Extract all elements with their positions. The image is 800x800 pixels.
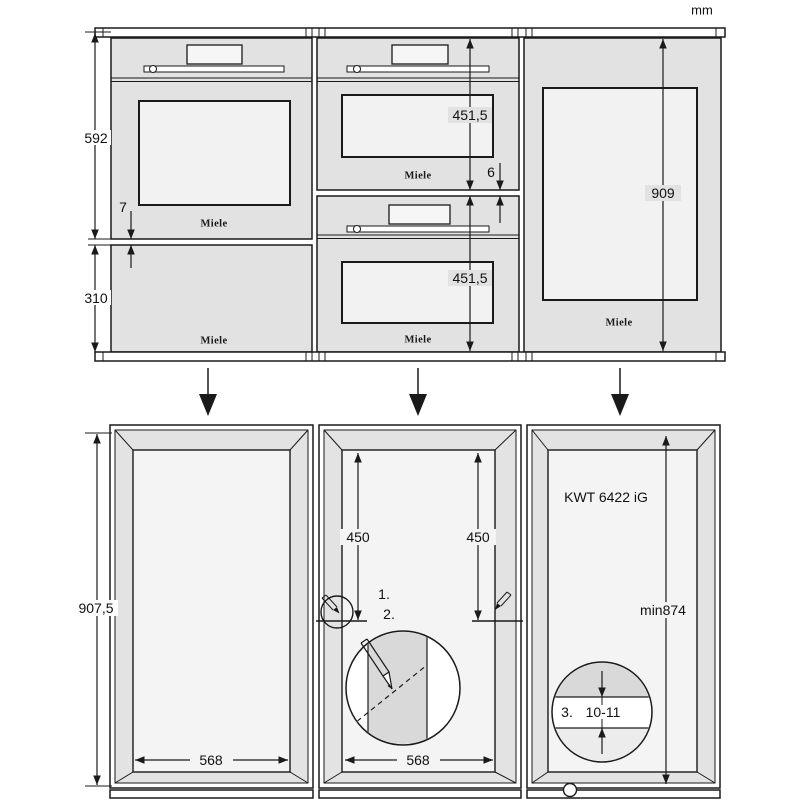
- compact-appliances: Miele Miele: [317, 38, 519, 352]
- oven-brand-logo: Miele: [200, 219, 227, 230]
- trim-strip-bar: [95, 352, 725, 361]
- left-niche: 907,5 568: [74, 425, 313, 798]
- niche-base-strip: [319, 790, 521, 798]
- oven-appliance: Miele Miele: [88, 38, 312, 352]
- lower-trim-strip: [95, 352, 725, 361]
- diagram-canvas: mm Miele: [0, 0, 800, 800]
- lower-compact-brand-logo: Miele: [404, 335, 431, 346]
- oven-door-window: [139, 101, 290, 205]
- flow-arrow-right: [611, 368, 629, 416]
- dim-label: min874: [640, 602, 686, 618]
- top-trim-strip: [95, 28, 725, 37]
- dim-label: 7: [119, 199, 127, 215]
- dim-label: 6: [487, 164, 495, 180]
- drawer-brand-logo: Miele: [200, 336, 227, 347]
- dim-label: 568: [406, 752, 430, 768]
- gap-dim-label: 10-11: [586, 704, 621, 720]
- oven-control-bar: [144, 66, 284, 72]
- flow-arrow-left: [199, 368, 217, 416]
- side-wall-section: [368, 628, 427, 748]
- fixing-hole-icon: [564, 784, 577, 797]
- lower-compact-control-bar: [347, 226, 489, 232]
- dim-label: 568: [199, 752, 223, 768]
- niche-opening: [133, 450, 290, 772]
- flow-arrow-middle: [409, 368, 427, 416]
- upper-compact-knob-icon: [354, 66, 361, 73]
- step-label-1: 1.: [378, 586, 390, 602]
- niche-base-strip: [110, 790, 313, 798]
- middle-niche: 450 450 1. 2.: [316, 425, 523, 798]
- oven-knob-icon: [150, 66, 157, 73]
- lower-compact-knob-icon: [354, 226, 361, 233]
- step-label-3: 3.: [561, 704, 573, 720]
- trim-strip-bar: [95, 28, 725, 37]
- upper-compact-brand-logo: Miele: [404, 171, 431, 182]
- dim-label: 450: [346, 529, 370, 545]
- dim-label: 450: [466, 529, 490, 545]
- wine-unit-brand-logo: Miele: [605, 318, 632, 329]
- dim-label: 451,5: [452, 270, 487, 286]
- model-label: KWT 6422 iG: [564, 489, 648, 505]
- wine-unit-appliance: Miele: [524, 38, 721, 352]
- oven-display: [187, 45, 242, 64]
- upper-compact-display: [392, 45, 448, 64]
- niche-base-strip: [527, 790, 720, 798]
- dim-label: 907,5: [78, 600, 113, 616]
- dimension-oven-height-592: 592: [81, 32, 111, 239]
- step-label-2: 2.: [383, 606, 395, 622]
- dim-label: 310: [84, 290, 108, 306]
- installation-diagram: mm Miele: [0, 0, 800, 800]
- dimension-drawer-height-310: 310: [81, 245, 111, 352]
- dim-label: 592: [84, 130, 108, 146]
- dim-label: 451,5: [452, 107, 487, 123]
- dim-label: 909: [651, 185, 675, 201]
- upper-compact-control-bar: [347, 66, 489, 72]
- right-niche: KWT 6422 iG min874 3. 10-11: [527, 425, 720, 798]
- flow-arrows: [199, 368, 629, 416]
- unit-label: mm: [691, 3, 713, 18]
- oven-drawer-gap-lines: [88, 239, 111, 245]
- lower-compact-display: [389, 205, 450, 224]
